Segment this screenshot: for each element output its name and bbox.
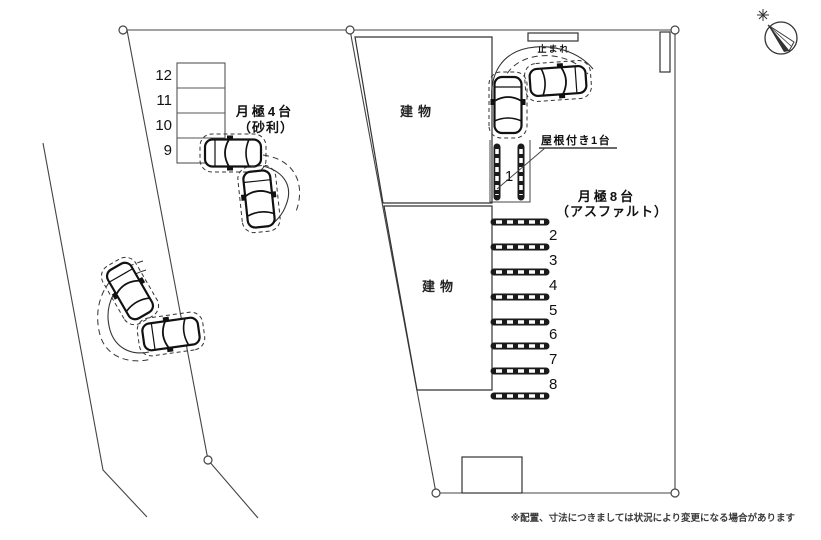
stall-number: 7 — [549, 351, 557, 368]
car-icon — [237, 164, 282, 234]
parking-site-plan: 建物 建物 止まれ 12 11 10 9 月極4台 （砂利） 1 — [0, 0, 821, 540]
north-star-icon — [757, 9, 769, 21]
stall-number: 4 — [549, 277, 557, 294]
building-1-label: 建物 — [400, 104, 436, 119]
buildings: 建物 建物 — [355, 37, 492, 390]
survey-point-icon — [671, 26, 679, 34]
building-1-outline — [355, 37, 492, 203]
stop-sign: 止まれ — [528, 33, 578, 54]
north-arrow-icon — [757, 9, 797, 54]
boundary-lines — [43, 30, 675, 518]
stop-bar-icon — [528, 33, 578, 41]
survey-point-icon — [204, 456, 212, 464]
shed-outline — [462, 457, 522, 493]
stop-sign-label: 止まれ — [537, 43, 570, 54]
covered-stall-label: 屋根付き1台 — [541, 133, 611, 147]
stall-number: 11 — [156, 92, 172, 109]
right-lot-surface: （アスファルト） — [556, 204, 668, 219]
stall-number: 3 — [549, 252, 557, 269]
building-2-outline — [384, 206, 492, 390]
stall-number: 6 — [549, 326, 557, 343]
car-icon — [200, 134, 266, 172]
right-lot-name: 月極8台 — [577, 189, 636, 204]
survey-point-icon — [432, 489, 440, 497]
survey-point-icon — [346, 26, 354, 34]
footnote-text: ※配置、寸法につきましては状況により変更になる場合があります — [511, 512, 796, 524]
survey-point-icon — [671, 489, 679, 497]
site-plan-page: 建物 建物 止まれ 12 11 10 9 月極4台 （砂利） 1 — [0, 0, 821, 540]
stall-number: 10 — [155, 117, 172, 134]
road-edge-line — [43, 143, 147, 517]
left-lot-surface: （砂利） — [238, 120, 294, 135]
survey-point-icon — [119, 26, 127, 34]
wheel-stop-bars — [494, 222, 546, 396]
stall-number: 2 — [549, 227, 557, 244]
left-lot-name: 月極4台 — [235, 104, 294, 119]
car-icon — [489, 72, 527, 138]
car-icon — [524, 60, 592, 103]
right-lot-stalls: 2 3 4 5 6 7 8 月極8台 （アスファルト） — [494, 189, 668, 396]
wall-segment — [660, 32, 670, 72]
stall-number: 12 — [155, 67, 172, 84]
car-icon — [136, 311, 207, 358]
stall-number: 9 — [164, 142, 172, 159]
stall-number: 8 — [549, 376, 557, 393]
stall-number: 5 — [549, 302, 557, 319]
building-2-label: 建物 — [422, 279, 458, 294]
